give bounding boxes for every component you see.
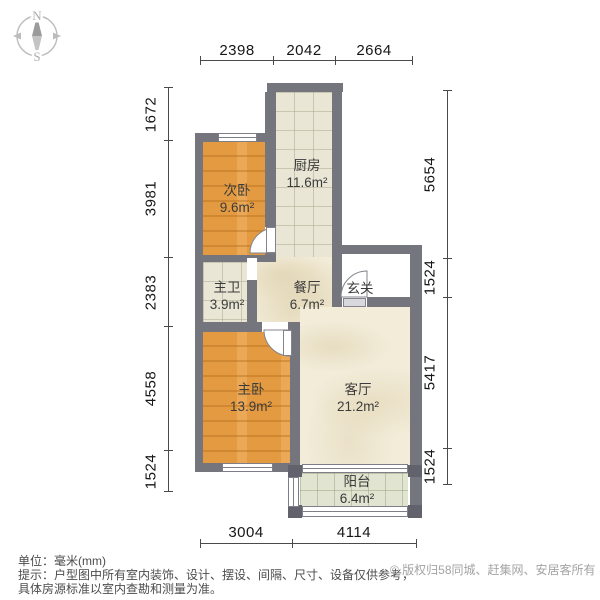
entrance-door-leaf [343,298,366,307]
room-name: 厨房 [286,157,327,174]
room-label-foyer: 玄关 [347,280,374,297]
dim-value: 2383 [143,258,160,328]
room-name: 餐厅 [290,279,325,296]
room-name: 客厅 [337,381,379,398]
dim-tick [164,491,173,492]
room-area: 13.9m² [230,398,272,415]
dim-tick [443,90,452,91]
dim-value: 2664 [334,42,414,59]
room-name: 玄关 [347,280,374,297]
dim-value: 3981 [143,164,160,234]
dim-tick [164,87,173,88]
room-label-second-bedroom: 次卧 9.6m² [220,182,255,217]
dim-value: 2042 [264,42,344,59]
dim-tick [443,297,452,298]
dim-line [168,87,169,492]
dim-tick [164,450,173,451]
room-label-master-bedroom: 主卧 13.9m² [230,381,272,416]
dim-value: 1524 [143,437,160,507]
dim-value: 3004 [206,524,286,541]
dim-value: 4114 [314,524,394,541]
room-label-living: 客厅 21.2m² [337,381,379,416]
room-name: 阳台 [340,473,375,490]
room-area: 3.9m² [210,296,245,313]
master-bedroom-door-leaf [283,330,292,356]
dim-value: 1672 [143,80,160,150]
dim-value: 1524 [422,432,439,502]
dim-value: 5417 [422,338,439,408]
room-area: 9.6m² [220,199,255,216]
room-area: 11.6m² [286,174,327,191]
room-label-bathroom: 主卫 3.9m² [210,279,245,314]
room-area: 21.2m² [337,398,379,415]
dim-tick [200,539,201,548]
room-name: 次卧 [220,182,255,199]
room-name: 主卧 [230,381,272,398]
room-area: 6.4m² [340,490,375,507]
dim-tick [164,257,173,258]
dim-line [447,90,448,485]
dim-line [200,60,413,61]
dim-value: 5654 [422,140,439,210]
dim-value: 4558 [143,354,160,424]
footer-tip-line2: 具体房源标准以室内查勘和测量为准。 [18,580,222,597]
room-label-dining: 餐厅 6.7m² [290,279,325,314]
room-label-balcony: 阳台 6.4m² [340,473,375,508]
second-bedroom-door-leaf [266,227,276,253]
dim-line [200,543,417,544]
dim-value: 1524 [422,243,439,313]
room-name: 主卫 [210,279,245,296]
dim-tick [443,448,452,449]
floorplan-page: { "compass": { "north_label": "N", "sout… [0,0,600,600]
dim-tick [443,258,452,259]
dim-tick [443,484,452,485]
dim-tick [164,140,173,141]
footer-copyright: © 版权归58同城、赶集网、安居客所有 [390,561,596,578]
dim-tick [416,539,417,548]
room-area: 6.7m² [290,296,325,313]
dim-tick [164,326,173,327]
dim-tick [292,539,293,548]
room-label-kitchen: 厨房 11.6m² [286,157,327,192]
